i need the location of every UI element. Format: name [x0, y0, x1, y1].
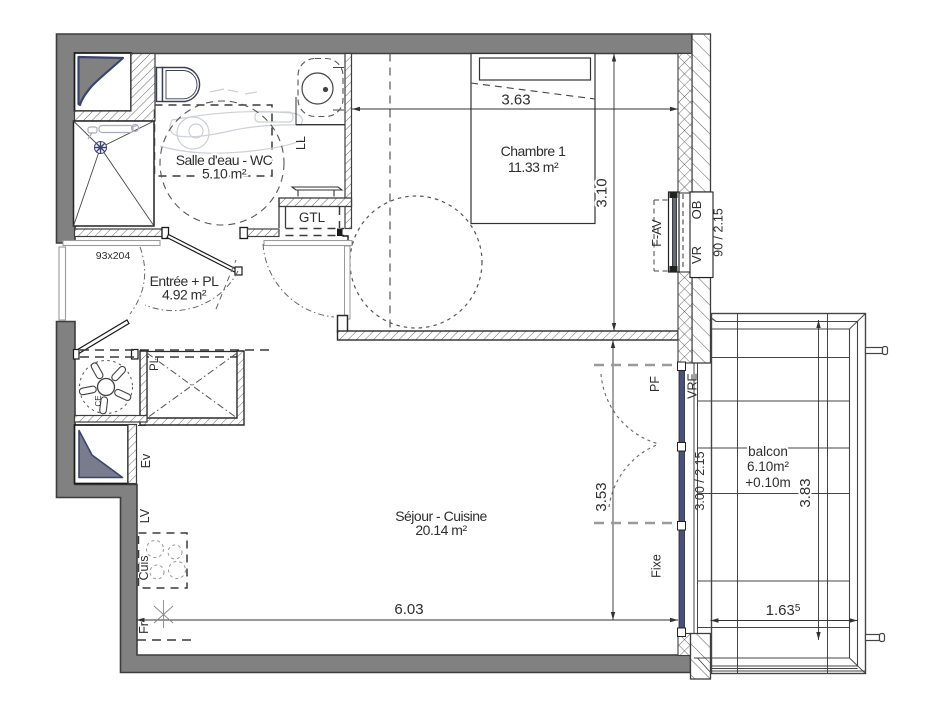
svg-text:LV: LV — [138, 508, 152, 523]
svg-text:GTL: GTL — [299, 210, 326, 225]
svg-text:PL: PL — [149, 356, 161, 371]
svg-text:5.10 m²: 5.10 m² — [202, 166, 247, 182]
svg-text:Fixe: Fixe — [650, 554, 664, 578]
svg-text:Ev: Ev — [139, 453, 153, 468]
svg-text:3.83: 3.83 — [797, 478, 814, 507]
svg-text:+0.10m: +0.10m — [745, 475, 790, 490]
svg-text:20.14 m²: 20.14 m² — [415, 522, 467, 538]
svg-text:OB: OB — [689, 201, 704, 220]
svg-text:3.00 / 2.15: 3.00 / 2.15 — [693, 451, 707, 510]
svg-text:6.10m²: 6.10m² — [747, 459, 790, 474]
svg-text:90 / 2.15: 90 / 2.15 — [712, 208, 726, 257]
svg-text:VR: VR — [689, 246, 704, 264]
svg-text:93x204: 93x204 — [96, 250, 131, 262]
svg-text:VRE: VRE — [686, 373, 700, 399]
svg-text:4.92 m²: 4.92 m² — [162, 287, 207, 303]
svg-text:LL: LL — [294, 136, 308, 150]
svg-text:3.10: 3.10 — [594, 178, 611, 207]
svg-text:CE: CE — [94, 395, 103, 406]
svg-text:Cuis: Cuis — [137, 555, 151, 580]
svg-text:Chambre 1: Chambre 1 — [501, 143, 566, 159]
svg-text:11.33 m²: 11.33 m² — [508, 159, 559, 175]
svg-text:6.03: 6.03 — [394, 601, 423, 618]
svg-text:balcon: balcon — [748, 444, 788, 459]
svg-text:3.53: 3.53 — [593, 482, 610, 511]
svg-text:Fr: Fr — [137, 622, 151, 634]
svg-text:F-AV: F-AV — [650, 219, 664, 247]
svg-text:PF: PF — [648, 376, 662, 392]
svg-text:3.63: 3.63 — [501, 92, 530, 109]
